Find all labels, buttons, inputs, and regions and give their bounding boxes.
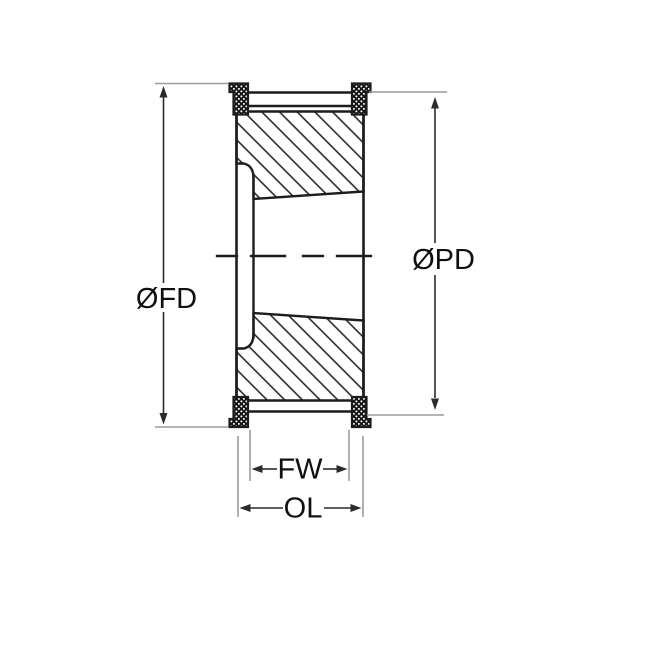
fw-label: FW	[277, 454, 323, 486]
pd-arrow-up-icon	[431, 97, 439, 109]
flange-bottom-right	[352, 397, 371, 427]
fw-arrow-right-icon	[337, 465, 348, 473]
pd-arrow-down-icon	[431, 399, 439, 411]
ol-arrow-right-icon	[351, 504, 362, 512]
fd-arrow-up-icon	[160, 86, 168, 98]
dimension-pitch-diameter: ØPD	[367, 92, 475, 415]
ol-label: OL	[284, 493, 323, 525]
dimension-face-width: FW	[250, 430, 349, 486]
pulley-technical-drawing: ØFD ØPD FW OL	[0, 0, 670, 670]
flange-bottom-left	[230, 397, 249, 427]
ol-arrow-left-icon	[240, 504, 251, 512]
drawing-canvas: ØFD ØPD FW OL	[0, 0, 670, 670]
fw-arrow-left-icon	[252, 465, 263, 473]
pd-label: ØPD	[412, 244, 475, 276]
flange-top-left	[230, 84, 249, 115]
web-section-lower	[237, 313, 364, 401]
flange-top-right	[352, 84, 371, 115]
fd-arrow-down-icon	[160, 413, 168, 425]
pulley-body	[217, 84, 377, 428]
rim-band-top	[248, 93, 352, 107]
web-section-upper	[237, 112, 364, 200]
dimension-flange-diameter: ØFD	[136, 84, 228, 428]
fd-label: ØFD	[136, 283, 197, 315]
